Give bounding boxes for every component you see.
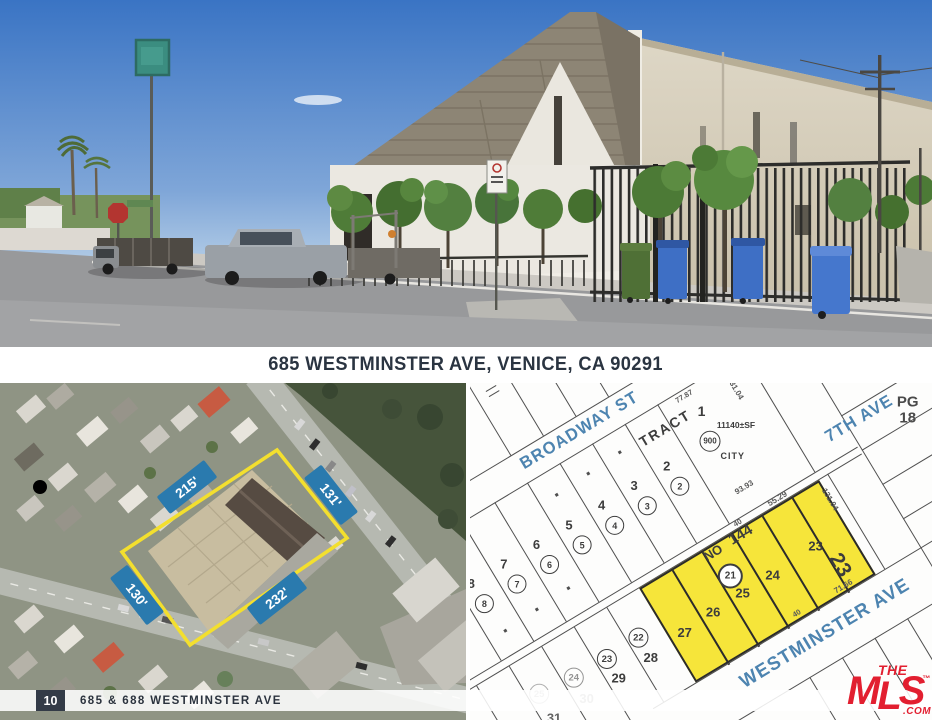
lot-number: 6 [533,537,540,552]
map-dot [503,629,506,632]
page-ref-line1: PG [897,393,919,410]
mls-logo-word: MLS [847,671,922,711]
map-line [557,383,609,397]
lot-circle: 8 [475,594,494,613]
lot-number: 23 [808,538,822,553]
address-band: 685 WESTMINSTER AVE, VENICE, CA 90291 [0,347,932,383]
map-dot [618,450,621,453]
lot-number: 4 [598,498,605,513]
lot-number: 3 [631,478,638,493]
lot-circle: 3 [638,496,657,515]
map-line [492,383,544,436]
lot-circle: 4 [605,516,624,535]
property-photo [0,0,932,347]
page-number-box: 10 [36,690,65,711]
lot-circle: 2 [670,477,689,496]
footer-title: 685 & 688 WESTMINSTER AVE [80,695,282,707]
meas-broadway: 77.87 [674,388,695,405]
map-line [903,465,932,519]
aerial-panel: 215' 131' 130' 232' [0,383,466,720]
lot-one-area: 11140±SF [717,420,755,430]
lot-number: 26 [706,605,720,620]
lot-number: 27 [677,625,691,640]
lot-number: 28 [644,650,658,665]
meas-lot-one-depth: 131.04 [725,383,745,401]
meas-alley: 93.93 [733,478,755,496]
aerial-photo: 215' 131' 130' 232' [0,383,466,720]
lot-circle: 7 [507,575,526,594]
footer-bar: 10 685 & 688 WESTMINSTER AVE [0,690,932,711]
mls-m: M [847,669,877,713]
subject-lot-circle: 21 [718,564,743,589]
lot-circle: 6 [540,555,559,574]
lot-one-city: CITY [720,451,745,461]
lot-circle: 24 [564,668,584,688]
mls-logo-tm: ™ [922,674,930,683]
mls-logo-com: .COM [903,706,931,717]
lot-number: 8 [470,576,475,591]
lot-number: 24 [765,568,779,583]
property-photo-panel [0,0,932,347]
lot-number: 5 [565,517,572,532]
lot-circle: 22 [628,628,648,648]
mls-logo: THE MLS ™ .COM [845,662,932,718]
lot-number: 2 [663,459,670,474]
map-line [882,431,932,485]
map-line [525,383,577,416]
map-hatch [489,390,500,397]
lot-circle: 23 [597,649,617,669]
lot-circle: 5 [573,535,592,554]
map-dot [566,586,569,589]
lot-number: 29 [611,671,625,686]
map-dot [586,472,589,475]
lot-one-circle: 900 [700,431,721,452]
map-dot [555,493,558,496]
lot-one-number: 1 [698,403,706,419]
lot-number: 25 [735,586,749,601]
property-address: 685 WESTMINSTER AVE, VENICE, CA 90291 [269,354,664,376]
lot-number: 7 [500,556,507,571]
mls-l: L [877,676,898,716]
lot-number: 31 [547,711,561,720]
map-dot [535,608,538,611]
map-hatch [486,385,497,392]
